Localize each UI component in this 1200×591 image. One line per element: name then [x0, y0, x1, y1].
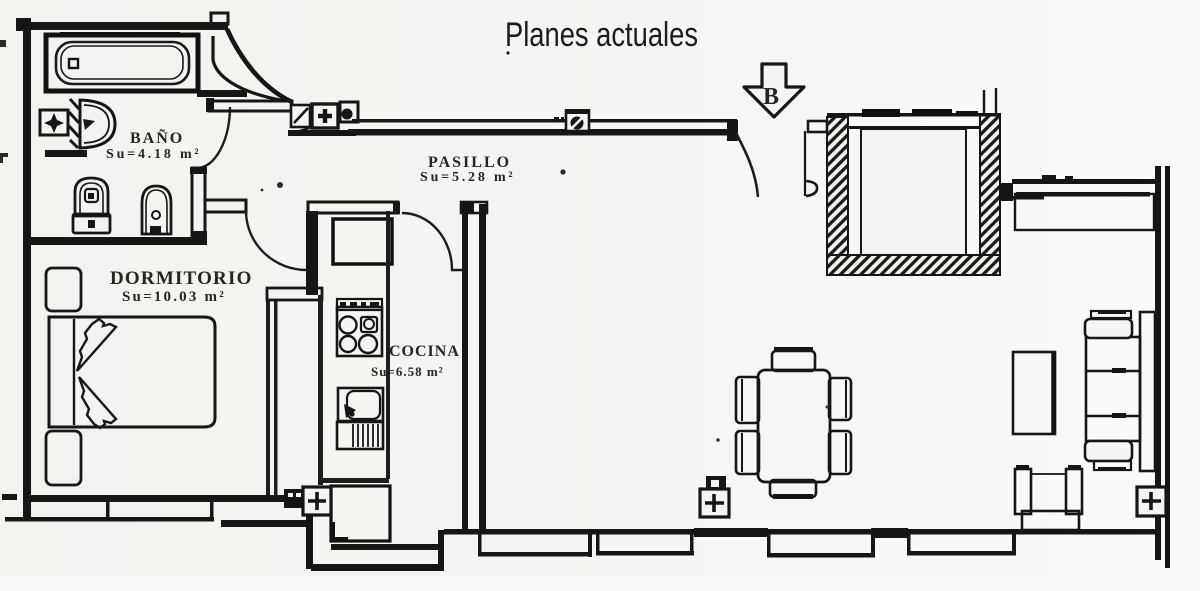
svg-text:Su=10.03 m²: Su=10.03 m²: [122, 289, 226, 305]
svg-text:COCINA: COCINA: [389, 343, 460, 360]
svg-text:B: B: [763, 84, 779, 110]
svg-text:Su=4.18 m²: Su=4.18 m²: [106, 147, 201, 162]
svg-text:Planes actuales: Planes actuales: [505, 16, 698, 54]
svg-text:PASILLO: PASILLO: [428, 154, 511, 171]
svg-text:Su=5.28 m²: Su=5.28 m²: [420, 170, 515, 185]
svg-text:BAÑO: BAÑO: [130, 128, 184, 147]
svg-text:Su=6.58 m²: Su=6.58 m²: [371, 364, 444, 379]
svg-text:DORMITORIO: DORMITORIO: [110, 268, 253, 289]
